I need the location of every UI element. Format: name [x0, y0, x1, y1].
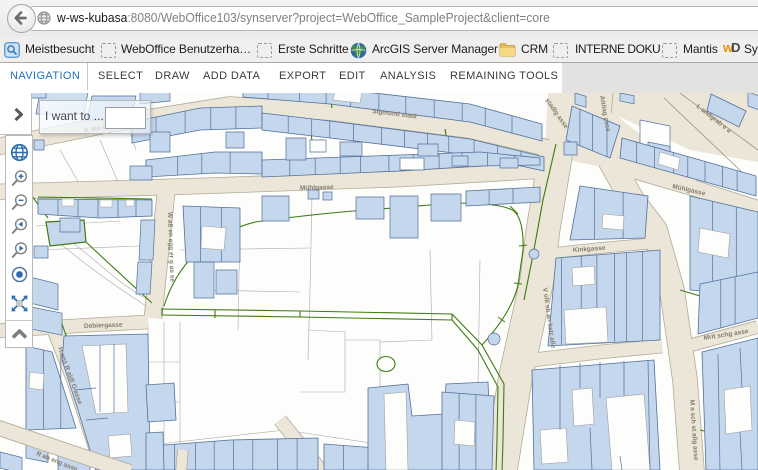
- svg-text:Debiergasse: Debiergasse: [84, 322, 123, 330]
- svg-text:Mühlgasse: Mühlgasse: [300, 184, 334, 192]
